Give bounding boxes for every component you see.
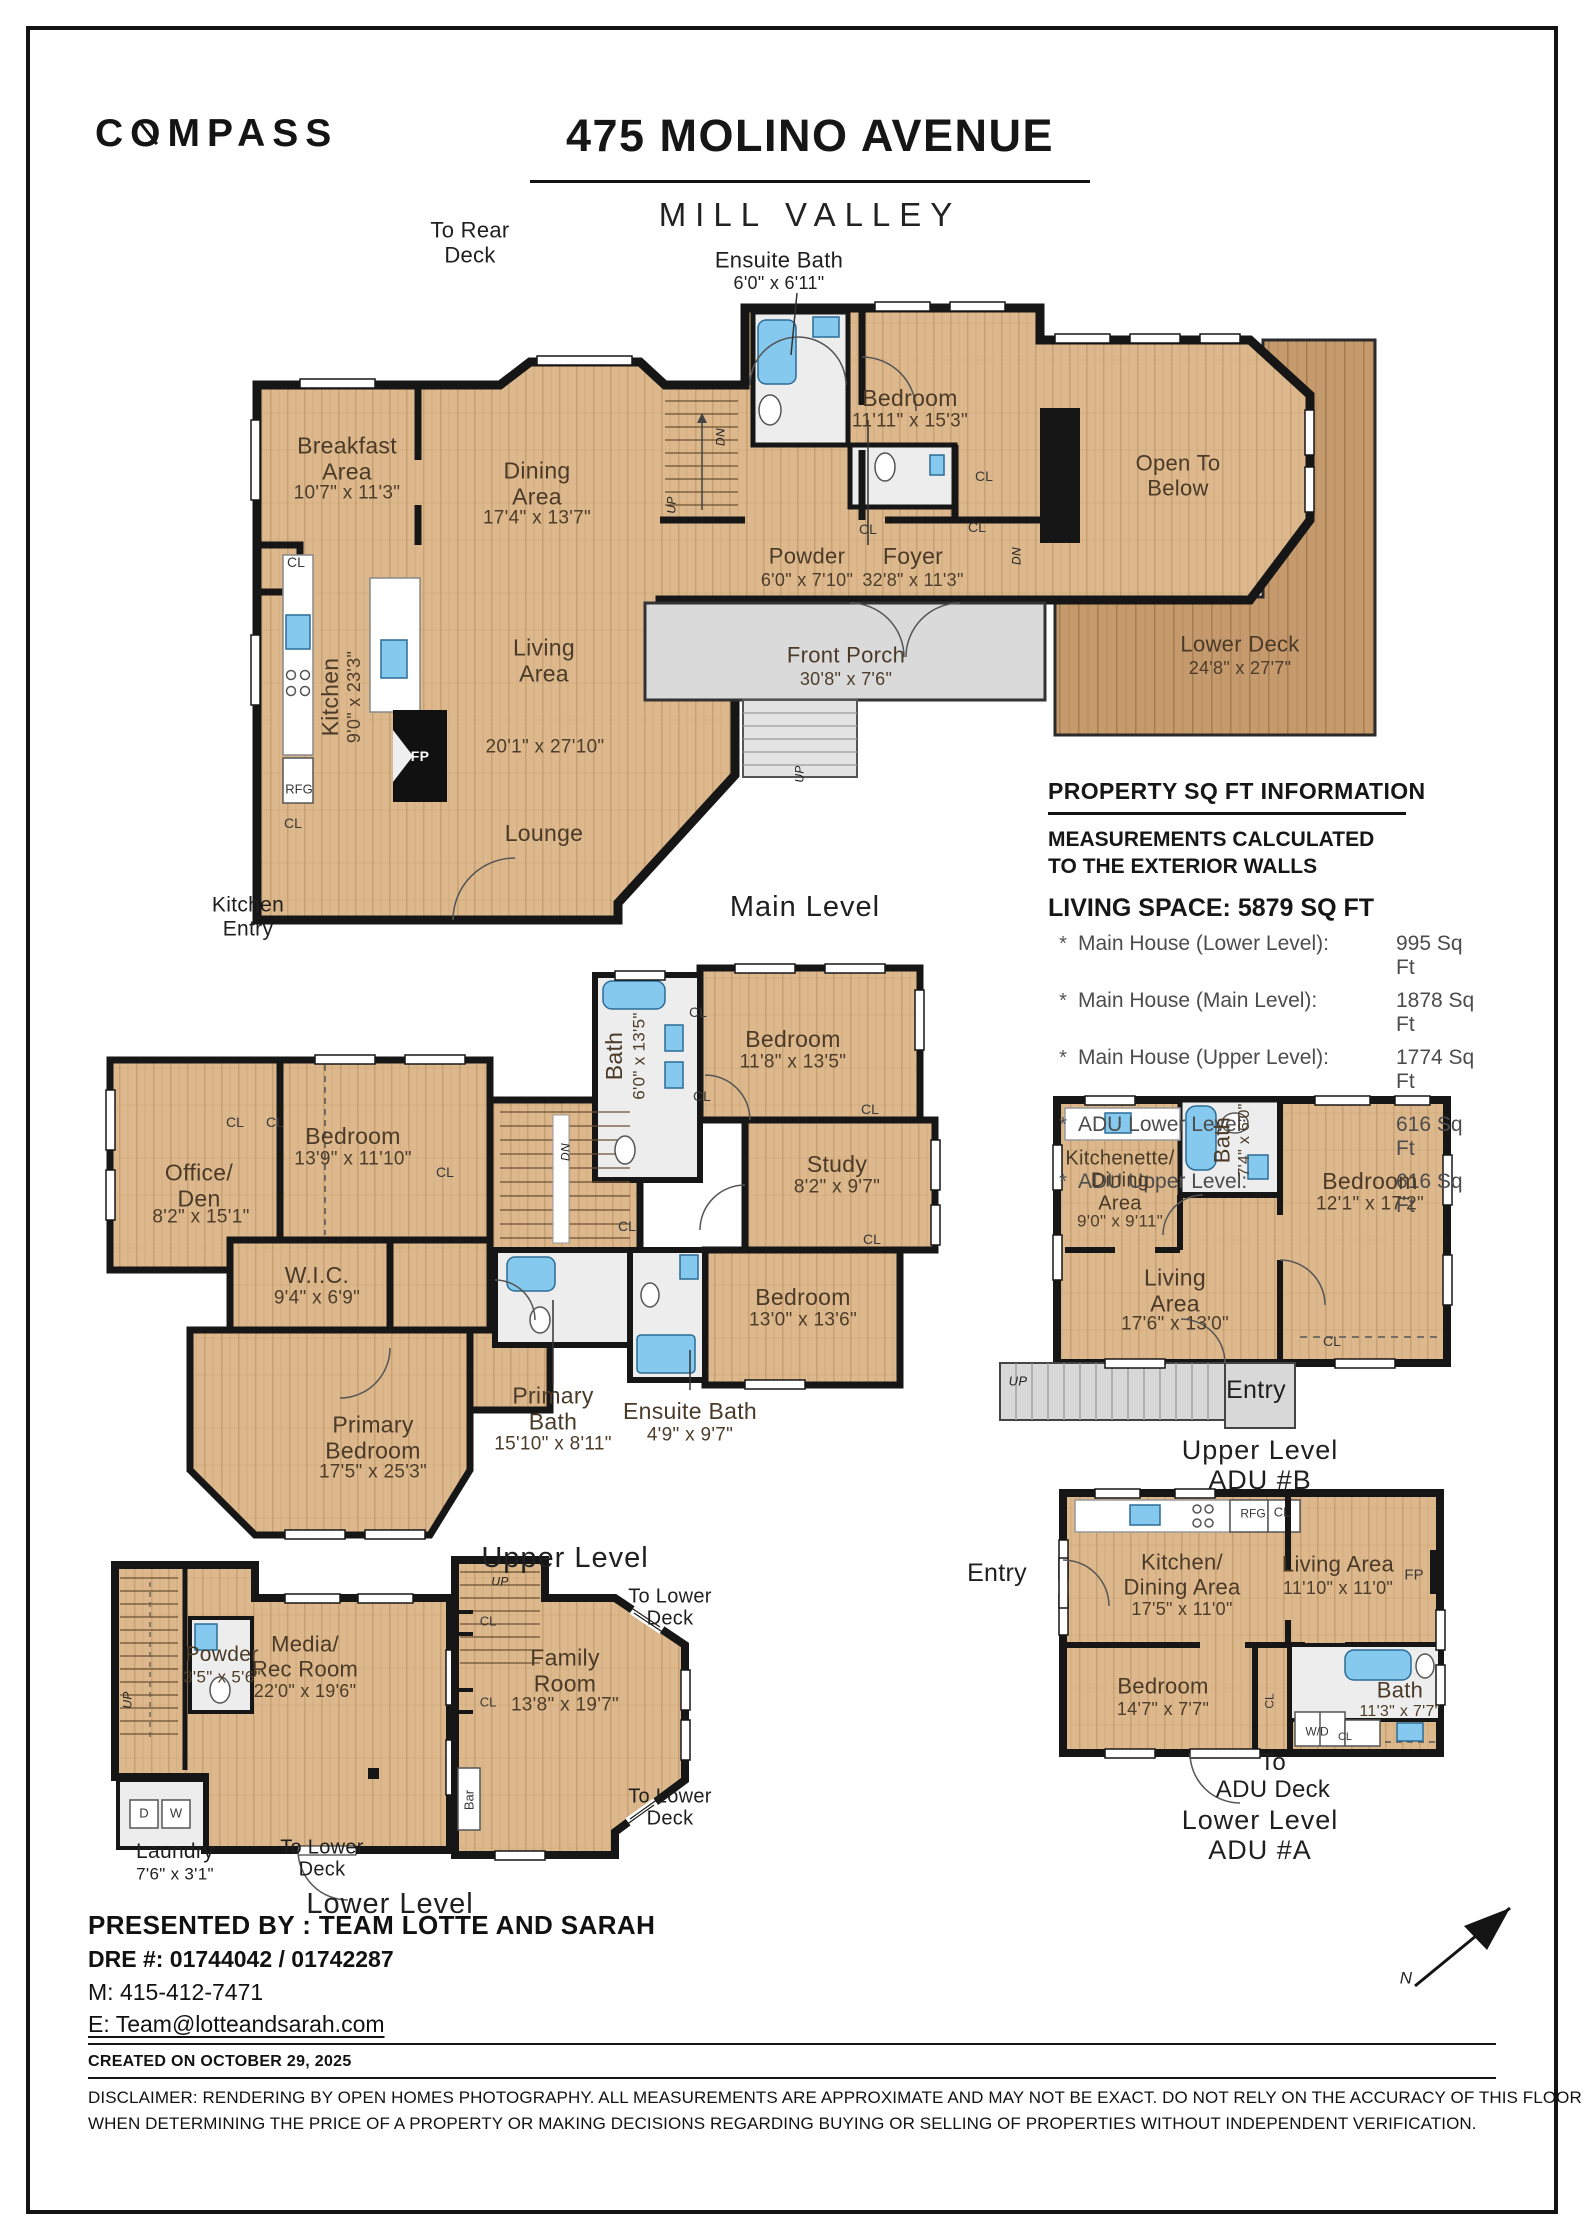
sqft-living-space: LIVING SPACE: 5879 SQ FT bbox=[1048, 894, 1478, 923]
sqft-row: *ADU Lower Level:616 Sq Ft bbox=[1048, 1113, 1478, 1161]
north-arrow-icon bbox=[1400, 1898, 1515, 1993]
page-title: 475 MOLINO AVENUE bbox=[566, 110, 1054, 162]
footer-disclaimer-line2: WHEN DETERMINING THE PRICE OF A PROPERTY… bbox=[88, 2114, 1477, 2134]
sqft-row: *ADU Upper Level:616 Sq Ft bbox=[1048, 1170, 1478, 1218]
footer-disclaimer-line1: DISCLAIMER: RENDERING BY OPEN HOMES PHOT… bbox=[88, 2088, 1584, 2108]
sqft-title-underline bbox=[1048, 812, 1406, 815]
sqft-title: PROPERTY SQ FT INFORMATION bbox=[1048, 778, 1478, 805]
compass-o-slash-icon: O bbox=[130, 112, 167, 156]
sqft-rows: *Main House (Lower Level):995 Sq Ft*Main… bbox=[1048, 932, 1478, 1218]
floor-plan-page: COMPASS 475 MOLINO AVENUE MILL VALLEY bbox=[0, 0, 1584, 2240]
footer-mobile: M: 415-412-7471 bbox=[88, 1979, 263, 2006]
footer-rule-bottom bbox=[88, 2077, 1496, 2079]
footer-rule-top bbox=[88, 2043, 1496, 2045]
title-underline bbox=[530, 180, 1090, 183]
lower-level-plan bbox=[100, 1550, 720, 1910]
sqft-row: *Main House (Lower Level):995 Sq Ft bbox=[1048, 932, 1478, 980]
adu-a-plan bbox=[1045, 1480, 1455, 1820]
upper-level-plan bbox=[85, 950, 945, 1550]
compass-logo: COMPASS bbox=[95, 112, 338, 156]
footer-presented-by: PRESENTED BY : TEAM LOTTE AND SARAH bbox=[88, 1910, 655, 1941]
sqft-note: MEASUREMENTS CALCULATED TO THE EXTERIOR … bbox=[1048, 826, 1478, 881]
sqft-row: *Main House (Upper Level):1774 Sq Ft bbox=[1048, 1046, 1478, 1094]
footer-created-on: CREATED ON OCTOBER 29, 2025 bbox=[88, 2053, 352, 2071]
sqft-panel: PROPERTY SQ FT INFORMATION MEASUREMENTS … bbox=[1048, 778, 1478, 1218]
sqft-row: *Main House (Main Level):1878 Sq Ft bbox=[1048, 989, 1478, 1037]
footer-dre: DRE #: 01744042 / 01742287 bbox=[88, 1946, 394, 1973]
footer-email-link[interactable]: E: Team@lotteandsarah.com bbox=[88, 2011, 385, 2038]
